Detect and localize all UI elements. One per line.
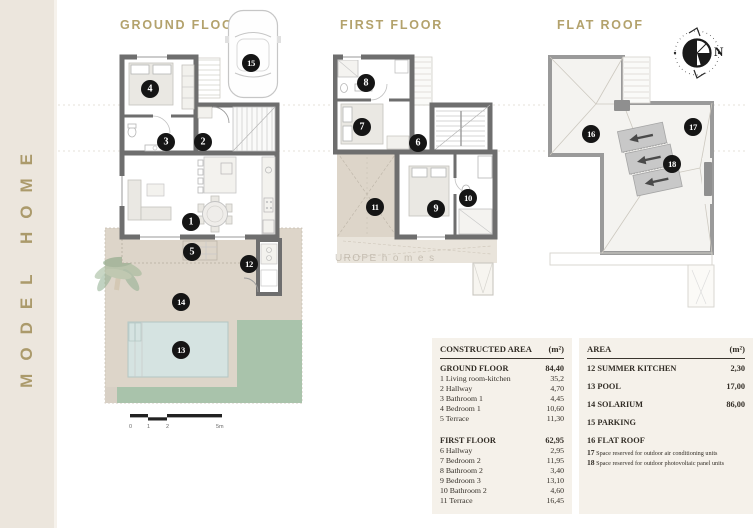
brand-vertical-text: MODEL HOME bbox=[17, 141, 37, 388]
svg-text:0: 0 bbox=[129, 424, 132, 428]
table-row: 1 Living room-kitchen 35,2 bbox=[440, 374, 564, 384]
svg-text:18: 18 bbox=[668, 159, 677, 169]
kitchen-counter bbox=[262, 157, 275, 234]
roof-outline bbox=[550, 57, 714, 307]
area-summary-header: AREA (m²) bbox=[587, 344, 745, 359]
chimney-block bbox=[704, 162, 712, 196]
ground-floor-title: GROUND FLOOR bbox=[120, 18, 244, 32]
brand-sidebar: MODEL HOME bbox=[0, 0, 54, 528]
upper-block bbox=[335, 54, 412, 152]
table-row: 14 SOLARIUM 86,00 bbox=[587, 400, 745, 409]
table-row: 5 Terrace 11,30 bbox=[440, 414, 564, 424]
svg-text:13: 13 bbox=[177, 345, 185, 355]
roof-access-hatch bbox=[614, 100, 630, 111]
svg-text:11: 11 bbox=[371, 202, 378, 212]
table-row: 8 Bathroom 2 3,40 bbox=[440, 466, 564, 476]
compass-north-label: N bbox=[714, 44, 724, 59]
table-note: 18 Space reserved for outdoor photovolta… bbox=[587, 459, 745, 469]
brochure-page: MODEL HOME GROUND FLOOR bbox=[0, 0, 756, 528]
table-note: 17 Space reserved for outdoor air condit… bbox=[587, 449, 745, 459]
car-icon bbox=[225, 11, 281, 98]
area-unit: (m²) bbox=[730, 344, 745, 354]
roof-hatch bbox=[412, 57, 432, 105]
area-summary-table: AREA (m²) 12 SUMMER KITCHEN 2,30 13 POOL… bbox=[579, 338, 753, 514]
svg-text:16: 16 bbox=[587, 129, 596, 139]
table-row: 4 Bedroom 1 10,60 bbox=[440, 404, 564, 414]
svg-text:5m: 5m bbox=[216, 424, 224, 428]
svg-text:4: 4 bbox=[148, 84, 153, 95]
terrace-11 bbox=[337, 152, 397, 237]
table-row: 3 Bathroom 1 4,45 bbox=[440, 394, 564, 404]
lower-block bbox=[397, 152, 495, 240]
table-row: 10 Bathroom 2 4,60 bbox=[440, 486, 564, 496]
constructed-area-unit: (m²) bbox=[549, 344, 564, 354]
table-row: 13 POOL 17,00 bbox=[587, 382, 745, 391]
area-title: AREA bbox=[587, 344, 611, 354]
staircase-first bbox=[432, 105, 490, 152]
table-row: 6 Hallway 2,95 bbox=[440, 446, 564, 456]
svg-text:15: 15 bbox=[247, 58, 255, 68]
svg-text:1: 1 bbox=[147, 424, 150, 428]
svg-text:8: 8 bbox=[364, 78, 369, 89]
area-tables: CONSTRUCTED AREA (m²) GROUND FLOOR 84,40… bbox=[432, 338, 753, 514]
svg-text:5: 5 bbox=[190, 247, 195, 258]
table-row: 7 Bedroom 2 11,95 bbox=[440, 456, 564, 466]
flat-roof-title: FLAT ROOF bbox=[557, 18, 644, 32]
table-row: 2 Hallway 4,70 bbox=[440, 384, 564, 394]
first-floor-plan: FIRST FLOOR bbox=[333, 8, 533, 308]
svg-text:2: 2 bbox=[166, 424, 169, 428]
svg-text:7: 7 bbox=[360, 122, 365, 133]
table-row: 11 Terrace 16,45 bbox=[440, 496, 564, 506]
svg-text:10: 10 bbox=[464, 193, 472, 203]
sidebar-edge-strip bbox=[54, 0, 57, 528]
svg-text:9: 9 bbox=[434, 204, 439, 215]
balcony bbox=[473, 263, 493, 295]
staircase bbox=[233, 107, 275, 151]
table-section-gap bbox=[440, 424, 564, 436]
constructed-area-title: CONSTRUCTED AREA bbox=[440, 344, 532, 354]
table-row: 12 SUMMER KITCHEN 2,30 bbox=[587, 364, 745, 373]
constructed-area-table: CONSTRUCTED AREA (m²) GROUND FLOOR 84,40… bbox=[432, 338, 572, 514]
watermark-text: UROPE h o m e s bbox=[335, 253, 435, 264]
scale-bar: 0 1 2 5m bbox=[129, 414, 224, 428]
first-floor-title: FIRST FLOOR bbox=[340, 18, 443, 32]
svg-text:12: 12 bbox=[245, 259, 253, 269]
svg-text:1: 1 bbox=[189, 217, 194, 228]
constructed-area-header: CONSTRUCTED AREA (m²) bbox=[440, 344, 564, 359]
svg-text:6: 6 bbox=[416, 138, 421, 149]
flat-roof-plan: FLAT ROOF N bbox=[540, 8, 756, 308]
table-row: 16 FLAT ROOF bbox=[587, 436, 745, 445]
compass-icon: N bbox=[674, 28, 724, 78]
table-row: 15 PARKING bbox=[587, 418, 745, 427]
kitchen-island bbox=[198, 157, 236, 193]
table-row: GROUND FLOOR 84,40 bbox=[440, 364, 564, 374]
table-row: 9 Bedroom 3 13,10 bbox=[440, 476, 564, 486]
svg-text:17: 17 bbox=[689, 122, 698, 132]
pergola-hatch bbox=[197, 58, 220, 98]
svg-text:3: 3 bbox=[164, 137, 169, 148]
table-row: FIRST FLOOR 62,95 bbox=[440, 436, 564, 446]
svg-text:14: 14 bbox=[177, 297, 186, 307]
roof-stair-hatch bbox=[623, 57, 650, 103]
svg-text:2: 2 bbox=[201, 137, 206, 148]
ground-floor-plan: GROUND FLOOR bbox=[85, 8, 335, 428]
wardrobe-7 bbox=[387, 136, 409, 149]
